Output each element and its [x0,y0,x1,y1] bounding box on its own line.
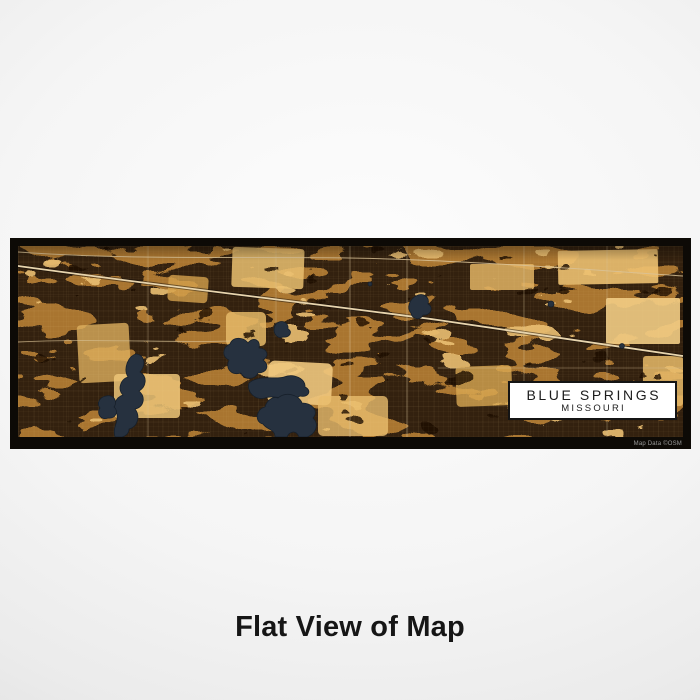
map-attribution: Map Data ©OSM [634,441,682,447]
map-print-frame: BLUE SPRINGS MISSOURI Map Data ©OSM [10,238,691,449]
map-title-city: BLUE SPRINGS [524,388,661,402]
caption: Flat View of Map [0,611,700,644]
map-title-box: BLUE SPRINGS MISSOURI [508,381,677,420]
product-photo: BLUE SPRINGS MISSOURI Map Data ©OSM Flat… [0,0,700,700]
map-title-state: MISSOURI [559,404,626,414]
map-canvas: BLUE SPRINGS MISSOURI [18,246,683,437]
